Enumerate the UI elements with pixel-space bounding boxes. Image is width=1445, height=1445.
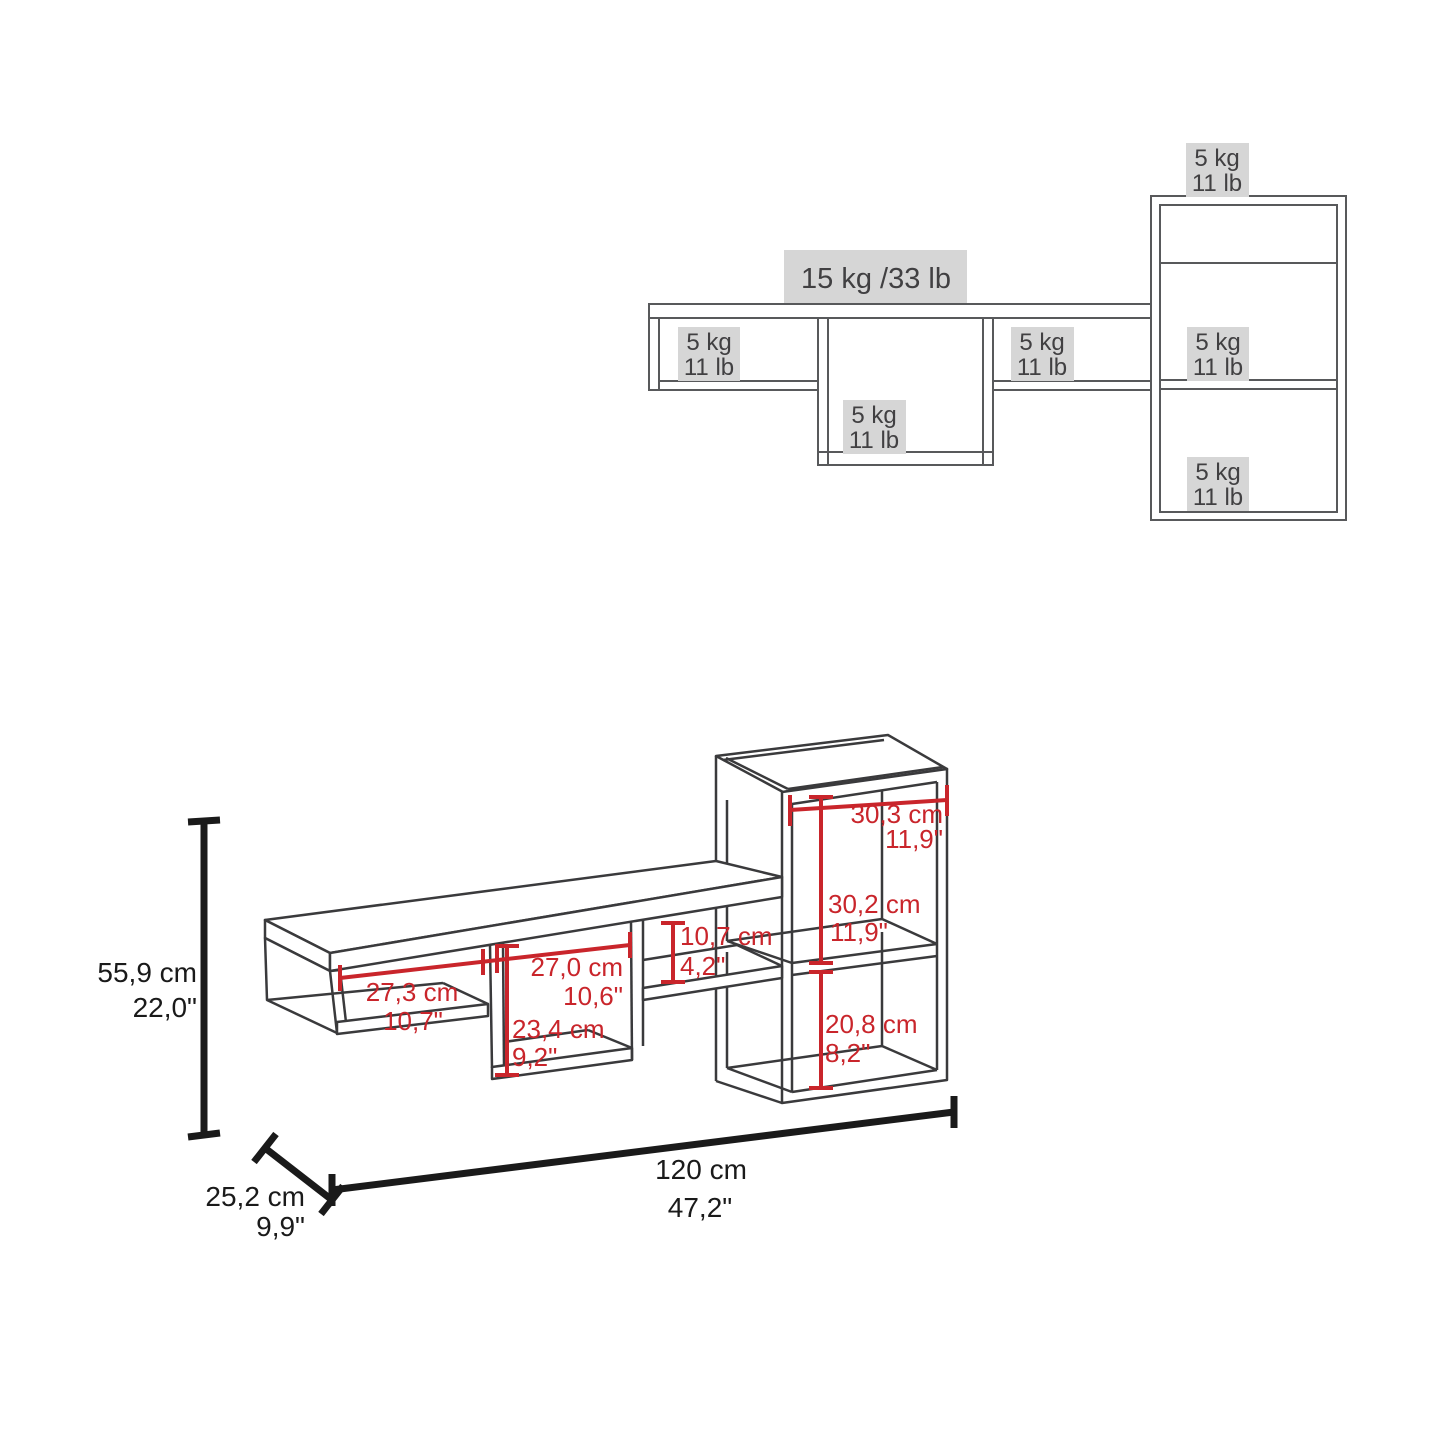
capacity-label-center-cubby: 5 kg 11 lb [843, 400, 906, 454]
dim-tower-width-inch: 11,9" [885, 824, 943, 854]
overall-depth-inch: 9,9" [256, 1211, 305, 1242]
dim-tower-lower-height-cm: 20,8 cm [825, 1009, 918, 1039]
center-cubby-left-wall [818, 318, 828, 465]
dim-tower-upper-height-inch: 11,9" [830, 917, 888, 947]
dim-left-cubby-width-inch: 10,7" [383, 1006, 443, 1036]
product-spec-diagram: 5 kg 11 lb 15 kg /33 lb 5 kg 11 lb 5 kg … [0, 0, 1445, 1445]
capacity-diagram: 5 kg 11 lb 15 kg /33 lb 5 kg 11 lb 5 kg … [649, 143, 1346, 520]
overall-depth-cm: 25,2 cm [205, 1181, 305, 1212]
capacity-label-tower-top: 5 kg 11 lb [1186, 143, 1249, 197]
capacity-lb: 11 lb [849, 427, 899, 454]
capacity-lb: 11 lb [1193, 354, 1243, 381]
extent-cap [188, 1133, 220, 1137]
capacity-label-right-cubby: 5 kg 11 lb [1011, 327, 1074, 381]
capacity-kg: 5 kg [1195, 329, 1240, 356]
edge [503, 943, 504, 1066]
capacity-total: 15 kg /33 lb [801, 263, 951, 295]
overall-width-inch: 47,2" [668, 1192, 732, 1223]
dimensions-diagram: 27,3 cm 10,7" 27,0 cm 10,6" 23,4 cm 9,2"… [97, 735, 954, 1242]
dim-right-opening-height-cm: 10,7 cm [680, 921, 773, 951]
dim-tower-lower-height-inch: 8,2" [825, 1038, 870, 1068]
dim-center-cubby-width-inch: 10,6" [563, 981, 623, 1011]
capacity-label-left-cubby: 5 kg 11 lb [678, 327, 740, 381]
capacity-lb: 11 lb [1192, 170, 1242, 197]
capacity-kg: 5 kg [851, 402, 896, 429]
overall-height-inch: 22,0" [133, 992, 197, 1023]
dim-left-cubby-width-cm: 27,3 cm [366, 977, 459, 1007]
extent-line [332, 1112, 954, 1190]
dim-right-opening-height-inch: 4,2" [680, 951, 725, 981]
overall-width-line [332, 1096, 954, 1206]
capacity-label-tower-bottom: 5 kg 11 lb [1187, 457, 1249, 511]
overall-height-cm: 55,9 cm [97, 957, 197, 988]
extent-cap [188, 820, 220, 822]
capacity-lb: 11 lb [684, 354, 734, 381]
left-end-wall [649, 318, 659, 390]
lower-shelf-left [659, 381, 818, 390]
center-cubby-right-wall [983, 318, 993, 465]
dim-center-cubby-width-cm: 27,0 cm [531, 952, 624, 982]
capacity-kg: 5 kg [1195, 459, 1240, 486]
dim-center-cubby-height-cm: 23,4 cm [512, 1014, 605, 1044]
dim-tower-upper-height-cm: 30,2 cm [828, 889, 921, 919]
capacity-kg: 5 kg [1194, 145, 1239, 172]
center-cubby-left-wall [490, 945, 492, 1068]
capacity-lb: 11 lb [1017, 354, 1067, 381]
capacity-kg: 5 kg [1019, 329, 1064, 356]
main-shelf-plank [649, 304, 1151, 318]
capacity-label-tower-middle: 5 kg 11 lb [1187, 327, 1249, 381]
capacity-lb: 11 lb [1193, 484, 1243, 511]
capacity-kg: 5 kg [686, 329, 731, 356]
lower-shelf-right [993, 381, 1151, 390]
overall-width-cm: 120 cm [655, 1154, 747, 1185]
dim-center-cubby-height-inch: 9,2" [512, 1042, 557, 1072]
tower-shelf [1160, 380, 1337, 389]
capacity-label-main-shelf: 15 kg /33 lb [784, 250, 967, 303]
